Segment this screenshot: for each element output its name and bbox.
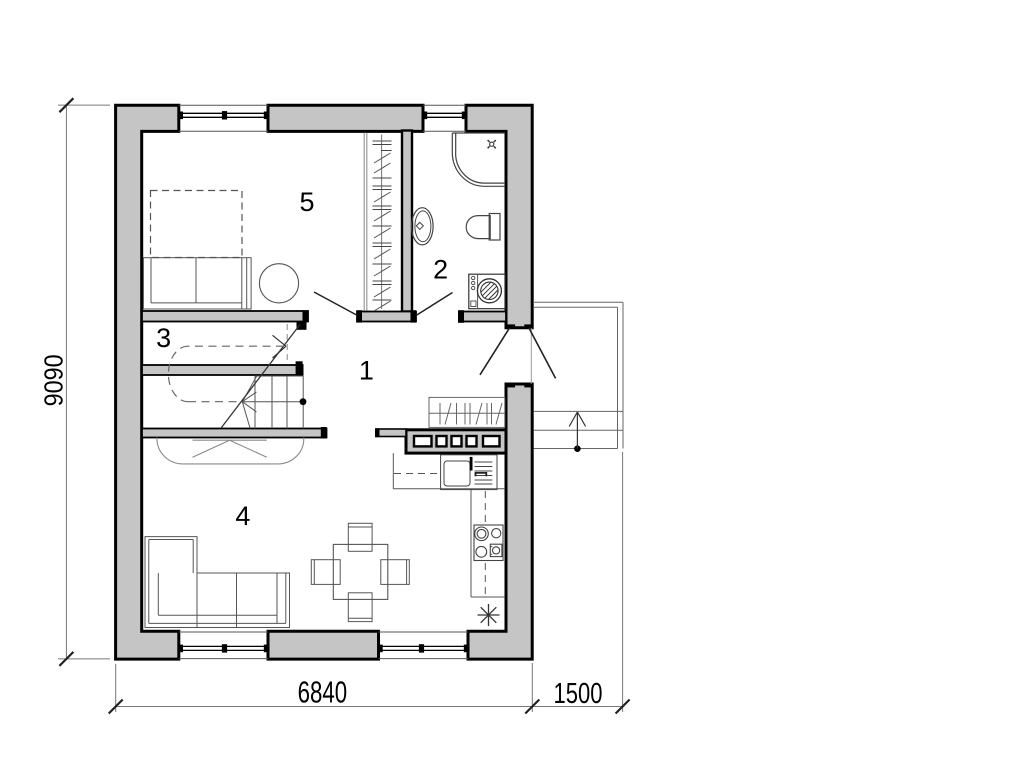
svg-text:1500: 1500 xyxy=(554,678,603,710)
svg-text:9090: 9090 xyxy=(38,354,68,406)
svg-text:3: 3 xyxy=(156,323,171,353)
svg-text:5: 5 xyxy=(299,187,314,217)
svg-text:1: 1 xyxy=(359,356,374,386)
svg-text:4: 4 xyxy=(235,501,250,531)
svg-text:6840: 6840 xyxy=(298,675,348,710)
svg-text:2: 2 xyxy=(433,255,448,285)
